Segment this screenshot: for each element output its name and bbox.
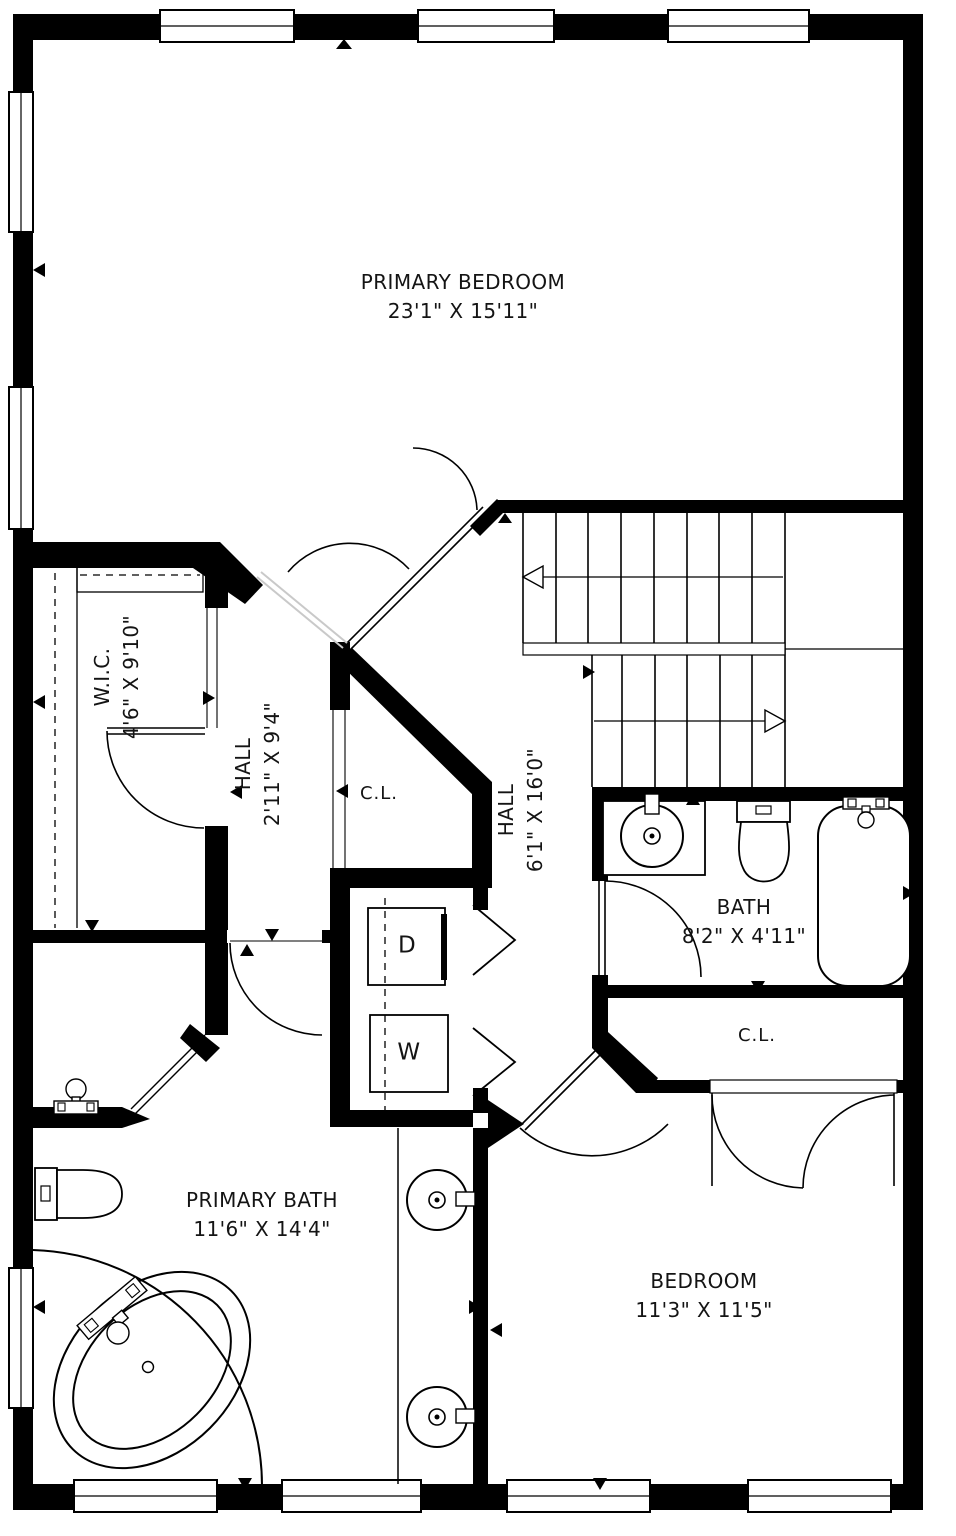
room-label-hall-small: HALL 2'11" X 9'4" [229, 702, 287, 826]
room-name: HALL [231, 738, 255, 791]
bath-sink [603, 794, 705, 875]
room-name: HALL [494, 784, 518, 837]
corner-tub [15, 1233, 289, 1507]
laundry-bifold-doors [473, 905, 515, 1096]
room-dims: 11'6" X 14'4" [193, 1217, 330, 1241]
bathtub [818, 797, 910, 986]
label-dryer: D [398, 929, 416, 962]
room-dims: 23'1" X 15'11" [388, 299, 538, 323]
room-name: PRIMARY BATH [186, 1188, 338, 1212]
window-icon [9, 387, 33, 529]
room-dims: 8'2" X 4'11" [682, 924, 806, 948]
primary-bath-toilet [35, 1168, 122, 1220]
vanity-sink [407, 1387, 475, 1447]
window-icon [748, 1480, 891, 1512]
window-icon [418, 10, 554, 42]
room-dims: 4'6" X 9'10" [119, 615, 143, 739]
stairs-up-arrow [523, 566, 783, 588]
window-icon [507, 1480, 650, 1512]
room-dims: 6'1" X 16'0" [523, 748, 547, 872]
window-icon [668, 10, 809, 42]
bedroom-closet-doors [710, 1080, 897, 1188]
vanity-sink [407, 1170, 475, 1230]
room-dims: 2'11" X 9'4" [260, 702, 284, 826]
room-name: PRIMARY BEDROOM [361, 270, 565, 294]
room-label-bedroom-closet: C.L. [738, 1023, 776, 1049]
room-name: BATH [717, 895, 772, 919]
primary-bedroom-door [257, 448, 488, 650]
room-label-primary-bedroom: PRIMARY BEDROOM 23'1" X 15'11" [361, 268, 565, 326]
interior-walls [33, 499, 923, 1484]
floor-plan-drawing [0, 0, 956, 1536]
window-icon [160, 10, 294, 42]
bath-toilet [737, 801, 790, 882]
floor-plan: PRIMARY BEDROOM 23'1" X 15'11" W.I.C. 4'… [0, 0, 956, 1536]
room-label-bedroom: BEDROOM 11'3" X 11'5" [635, 1267, 772, 1325]
label-washer: W [397, 1036, 420, 1069]
room-label-hall-closet: C.L. [360, 781, 398, 807]
room-name: C.L. [360, 783, 398, 804]
room-dims: 11'3" X 11'5" [635, 1298, 772, 1322]
window-icon [74, 1480, 217, 1512]
room-label-primary-bath: PRIMARY BATH 11'6" X 14'4" [186, 1186, 338, 1244]
window-icon [9, 92, 33, 232]
wic-shelving [55, 558, 203, 928]
room-label-bath: BATH 8'2" X 4'11" [682, 893, 806, 951]
room-label-hall-main: HALL 6'1" X 16'0" [492, 748, 550, 872]
double-vanity [398, 1128, 475, 1484]
room-name: BEDROOM [650, 1269, 757, 1293]
shower-head [54, 1079, 98, 1114]
room-name: W.I.C. [90, 648, 114, 707]
room-label-wic: W.I.C. 4'6" X 9'10" [88, 615, 146, 739]
window-icon [282, 1480, 421, 1512]
window-icon [9, 1268, 33, 1408]
bedroom-door [520, 1048, 668, 1156]
stairs [523, 513, 903, 787]
room-name: C.L. [738, 1025, 776, 1046]
